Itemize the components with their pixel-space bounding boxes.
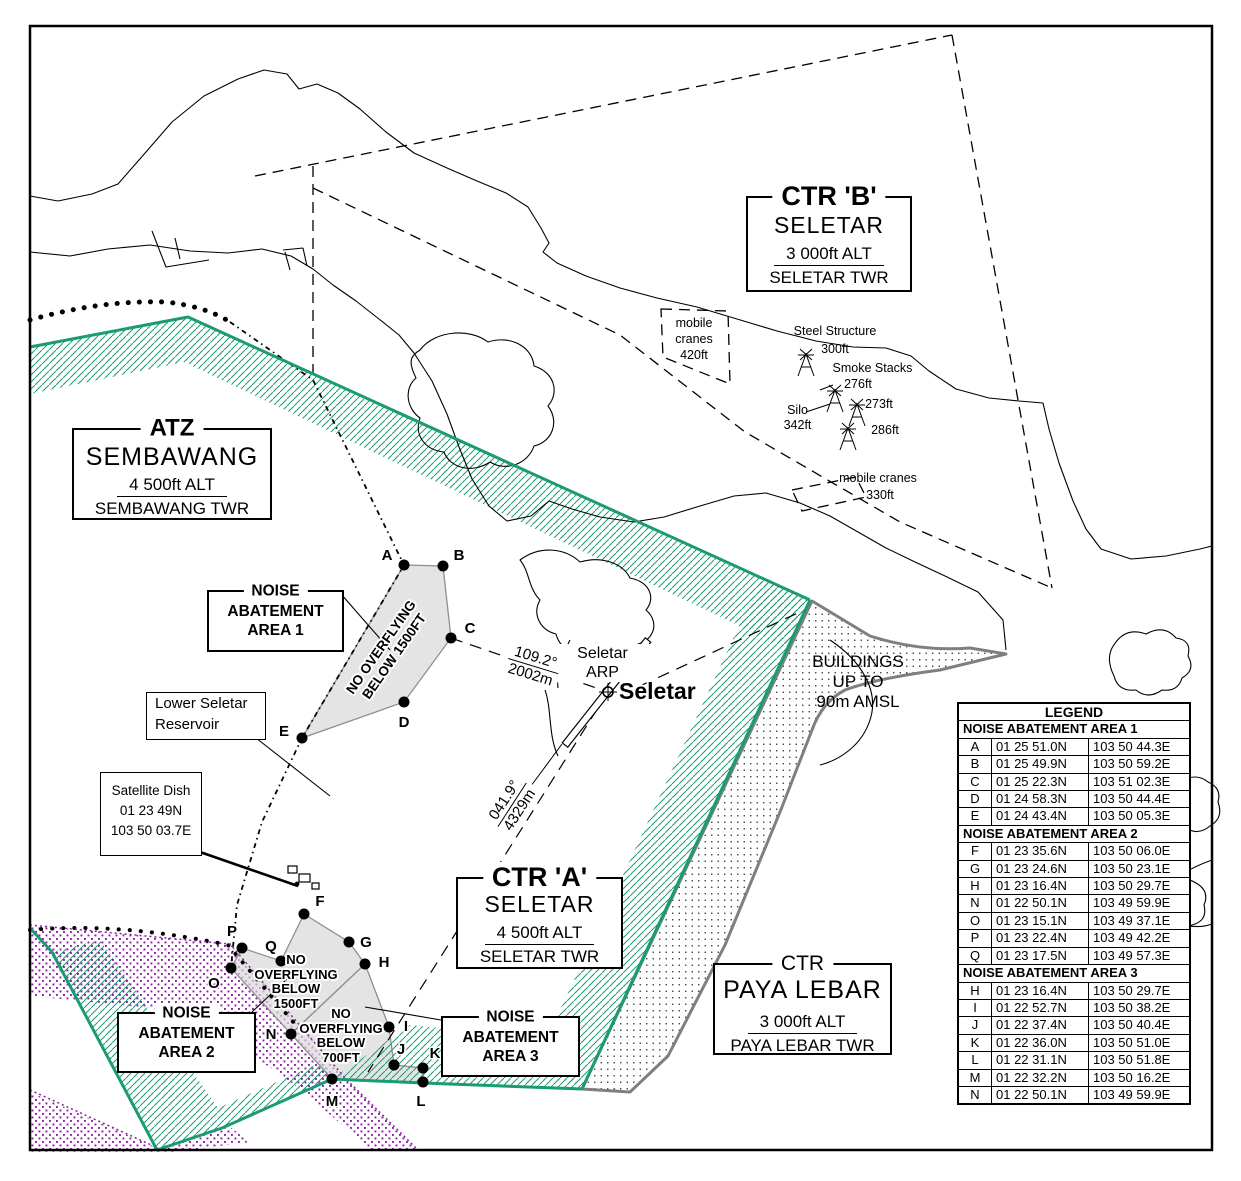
- ctr-a-name: SELETAR: [458, 891, 621, 918]
- legend-row: C01 25 22.3N103 51 02.3E: [958, 773, 1190, 790]
- satellite-dish-leader: [200, 852, 298, 886]
- legend-latitude: 01 22 37.4N: [992, 1017, 1089, 1034]
- overfly-area3-label: NO OVERFLYING BELOW 700FT: [299, 1007, 382, 1065]
- legend-point-id: K: [958, 1034, 992, 1051]
- legend-row: G01 23 24.6N103 50 23.1E: [958, 860, 1190, 877]
- point-marker-A: [399, 560, 410, 571]
- legend-latitude: 01 23 17.5N: [992, 947, 1089, 964]
- legend-latitude: 01 25 49.9N: [992, 756, 1089, 773]
- overfly-area3-line3: BELOW: [299, 1036, 382, 1051]
- legend-longitude: 103 50 38.2E: [1089, 999, 1191, 1016]
- point-label-J: J: [397, 1041, 405, 1058]
- point-marker-D: [399, 697, 410, 708]
- satellite-dish-line3: 103 50 03.7E: [101, 821, 201, 841]
- atz-name: SEMBAWANG: [74, 443, 270, 472]
- atz-sembawang-box: ATZ SEMBAWANG 4 500ft ALT SEMBAWANG TWR: [72, 428, 272, 520]
- noise-area1-box-line1: ABATEMENT: [209, 602, 342, 621]
- legend-row: I01 22 52.7N103 50 38.2E: [958, 999, 1190, 1016]
- legend-point-id: I: [958, 999, 992, 1016]
- legend-row: N01 22 50.1N103 49 59.9E: [958, 895, 1190, 912]
- legend-latitude: 01 23 16.4N: [992, 878, 1089, 895]
- legend-latitude: 01 22 50.1N: [992, 895, 1089, 912]
- reservoir-line2: Reservoir: [155, 714, 265, 735]
- legend-latitude: 01 23 16.4N: [992, 982, 1089, 999]
- mobile-cranes-se-height: 330ft: [855, 488, 905, 502]
- legend-longitude: 103 50 16.2E: [1089, 1069, 1191, 1086]
- seletar-city-label: Seletar: [619, 678, 696, 705]
- buildings-line2: UP TO: [788, 672, 928, 692]
- legend-row: P01 23 22.4N103 49 42.2E: [958, 930, 1190, 947]
- legend-row: F01 23 35.6N103 50 06.0E: [958, 843, 1190, 860]
- point-marker-G: [344, 937, 355, 948]
- point-label-O: O: [208, 975, 220, 992]
- smoke-stacks-h2: 273ft: [854, 397, 904, 411]
- noise-area3-box: NOISE ABATEMENT AREA 3: [441, 1016, 580, 1077]
- legend-latitude: 01 24 43.4N: [992, 808, 1089, 825]
- point-marker-O: [226, 963, 237, 974]
- mobile-cranes-nw-label: mobile cranes 420ft: [658, 315, 730, 363]
- legend-longitude: 103 51 02.3E: [1089, 773, 1191, 790]
- satellite-dish-callout: Satellite Dish 01 23 49N 103 50 03.7E: [100, 772, 202, 856]
- legend-latitude: 01 22 36.0N: [992, 1034, 1089, 1051]
- legend-point-id: A: [958, 738, 992, 755]
- legend-point-id: F: [958, 843, 992, 860]
- legend-section-header: NOISE ABATEMENT AREA 3: [958, 965, 1190, 982]
- mobile-cranes-se-label: mobile cranes: [828, 471, 928, 485]
- legend-table: LEGEND NOISE ABATEMENT AREA 1A01 25 51.0…: [957, 702, 1191, 1105]
- ctr-b-name: SELETAR: [748, 212, 910, 239]
- legend-longitude: 103 49 57.3E: [1089, 947, 1191, 964]
- ctr-b-boundary-nw: [255, 35, 952, 176]
- legend-longitude: 103 50 59.2E: [1089, 756, 1191, 773]
- legend-point-id: J: [958, 1017, 992, 1034]
- legend-row: L01 22 31.1N103 50 51.8E: [958, 1052, 1190, 1069]
- legend-longitude: 103 50 29.7E: [1089, 878, 1191, 895]
- legend-point-id: H: [958, 982, 992, 999]
- legend-row: B01 25 49.9N103 50 59.2E: [958, 756, 1190, 773]
- legend-latitude: 01 22 52.7N: [992, 999, 1089, 1016]
- point-marker-B: [438, 561, 449, 572]
- overfly-area3-line4: 700FT: [299, 1051, 382, 1066]
- point-label-P: P: [227, 923, 237, 940]
- aeronautical-chart: ABCDEFGHIJKLMNOPQ CTR 'B' SELETAR 3 000f…: [0, 0, 1241, 1181]
- point-marker-N: [286, 1029, 297, 1040]
- noise-area1-box: NOISE ABATEMENT AREA 1: [207, 590, 344, 652]
- legend-row: K01 22 36.0N103 50 51.0E: [958, 1034, 1190, 1051]
- noise-area3-box-title: NOISE: [478, 1008, 542, 1027]
- legend-longitude: 103 49 37.1E: [1089, 912, 1191, 929]
- smoke-stacks-h1: 276ft: [833, 377, 883, 391]
- satellite-dish-structures: [288, 866, 319, 889]
- legend-point-id: G: [958, 860, 992, 877]
- point-marker-L: [418, 1077, 429, 1088]
- legend-point-id: N: [958, 1086, 992, 1104]
- point-label-H: H: [379, 954, 390, 971]
- paya-lebar-name: PAYA LEBAR: [715, 976, 890, 1005]
- ctr-a-alt: 4 500ft ALT: [485, 923, 595, 945]
- legend-title: LEGEND: [958, 703, 1190, 721]
- legend-latitude: 01 23 35.6N: [992, 843, 1089, 860]
- overfly-area2-line3: BELOW: [254, 982, 337, 997]
- legend-point-id: E: [958, 808, 992, 825]
- legend-row: A01 25 51.0N103 50 44.3E: [958, 738, 1190, 755]
- atz-dotted-boundary: [30, 302, 230, 322]
- point-marker-I: [384, 1022, 395, 1033]
- mobile-cranes-nw-line3: 420ft: [658, 347, 730, 363]
- steel-structure-height: 300ft: [805, 342, 865, 356]
- buildings-line3: 90m AMSL: [788, 692, 928, 712]
- buildings-label: BUILDINGS UP TO 90m AMSL: [788, 652, 928, 712]
- legend-row: J01 22 37.4N103 50 40.4E: [958, 1017, 1190, 1034]
- legend-latitude: 01 24 58.3N: [992, 791, 1089, 808]
- legend-row: Q01 23 17.5N103 49 57.3E: [958, 947, 1190, 964]
- legend-point-id: B: [958, 756, 992, 773]
- reservoir-leader: [256, 738, 330, 796]
- point-marker-J: [389, 1060, 400, 1071]
- point-label-K: K: [430, 1045, 441, 1062]
- noise-area2-box-line1: ABATEMENT: [119, 1024, 254, 1043]
- point-label-I: I: [404, 1018, 408, 1035]
- legend-latitude: 01 23 15.1N: [992, 912, 1089, 929]
- point-label-N: N: [266, 1026, 277, 1043]
- ctr-b-alt: 3 000ft ALT: [774, 244, 884, 266]
- legend-longitude: 103 49 59.9E: [1089, 1086, 1191, 1104]
- legend-point-id: D: [958, 791, 992, 808]
- legend-longitude: 103 49 42.2E: [1089, 930, 1191, 947]
- point-label-D: D: [399, 714, 410, 731]
- ctr-paya-lebar-box: CTR PAYA LEBAR 3 000ft ALT PAYA LEBAR TW…: [713, 963, 892, 1055]
- overfly-area2-label: NO OVERFLYING BELOW 1500FT: [254, 953, 337, 1011]
- legend-row: O01 23 15.1N103 49 37.1E: [958, 912, 1190, 929]
- legend-longitude: 103 50 44.4E: [1089, 791, 1191, 808]
- point-label-L: L: [416, 1093, 425, 1110]
- point-marker-K: [418, 1063, 429, 1074]
- smoke-stacks-h3: 286ft: [860, 423, 910, 437]
- legend-point-id: L: [958, 1052, 992, 1069]
- ctr-b-title: CTR 'B': [772, 181, 885, 212]
- ctr-a-twr: SELETAR TWR: [458, 947, 621, 967]
- ctr-b-twr: SELETAR TWR: [748, 268, 910, 288]
- steel-structure-label: Steel Structure: [770, 324, 900, 338]
- point-label-G: G: [360, 934, 372, 951]
- legend-point-id: O: [958, 912, 992, 929]
- point-label-A: A: [382, 547, 393, 564]
- legend-row: H01 23 16.4N103 50 29.7E: [958, 878, 1190, 895]
- noise-area2-box-title: NOISE: [154, 1004, 218, 1023]
- legend-longitude: 103 50 06.0E: [1089, 843, 1191, 860]
- reservoir-callout: Lower Seletar Reservoir: [146, 692, 266, 740]
- legend-latitude: 01 23 24.6N: [992, 860, 1089, 877]
- legend-latitude: 01 25 22.3N: [992, 773, 1089, 790]
- legend-point-id: H: [958, 878, 992, 895]
- legend-longitude: 103 50 51.8E: [1089, 1052, 1191, 1069]
- ctr-b-boundary-south: [313, 188, 1052, 588]
- legend-row: D01 24 58.3N103 50 44.4E: [958, 791, 1190, 808]
- legend-point-id: N: [958, 895, 992, 912]
- satellite-dish-line2: 01 23 49N: [101, 801, 201, 821]
- point-marker-F: [299, 909, 310, 920]
- reservoir-line1: Lower Seletar: [155, 693, 265, 714]
- legend-longitude: 103 50 51.0E: [1089, 1034, 1191, 1051]
- legend-latitude: 01 22 32.2N: [992, 1069, 1089, 1086]
- legend-longitude: 103 50 44.3E: [1089, 738, 1191, 755]
- point-marker-M: [327, 1074, 338, 1085]
- legend-section-header: NOISE ABATEMENT AREA 1: [958, 721, 1190, 738]
- point-marker-C: [446, 633, 457, 644]
- runway-extension: [528, 744, 562, 790]
- paya-lebar-alt: 3 000ft ALT: [748, 1012, 858, 1034]
- pier-structures: [152, 231, 307, 270]
- noise-area3-box-line1: ABATEMENT: [443, 1028, 578, 1047]
- silo-height: 342ft: [770, 418, 825, 432]
- point-marker-H: [360, 959, 371, 970]
- point-marker-P: [237, 943, 248, 954]
- legend-longitude: 103 49 59.9E: [1089, 895, 1191, 912]
- legend-row: E01 24 43.4N103 50 05.3E: [958, 808, 1190, 825]
- seletar-arp-label: Seletar ARP: [550, 644, 655, 682]
- point-label-B: B: [454, 547, 465, 564]
- legend-longitude: 103 50 23.1E: [1089, 860, 1191, 877]
- ctr-b-box: CTR 'B' SELETAR 3 000ft ALT SELETAR TWR: [746, 196, 912, 292]
- legend-latitude: 01 25 51.0N: [992, 738, 1089, 755]
- legend-longitude: 103 50 29.7E: [1089, 982, 1191, 999]
- buildings-line1: BUILDINGS: [788, 652, 928, 672]
- mobile-cranes-nw-line2: cranes: [658, 331, 730, 347]
- legend-longitude: 103 50 40.4E: [1089, 1017, 1191, 1034]
- point-label-C: C: [465, 620, 476, 637]
- legend-point-id: P: [958, 930, 992, 947]
- legend-point-id: M: [958, 1069, 992, 1086]
- atz-twr: SEMBAWANG TWR: [74, 499, 270, 519]
- legend-row: N01 22 50.1N103 49 59.9E: [958, 1086, 1190, 1104]
- overfly-area3-line1: NO: [299, 1007, 382, 1022]
- paya-lebar-title: CTR: [772, 952, 833, 976]
- legend-longitude: 103 50 05.3E: [1089, 808, 1191, 825]
- paya-lebar-twr: PAYA LEBAR TWR: [715, 1036, 890, 1056]
- seletar-arp-line1: Seletar: [550, 644, 655, 663]
- atz-title: ATZ: [141, 415, 204, 443]
- noise-area2-box: NOISE ABATEMENT AREA 2: [117, 1012, 256, 1073]
- point-label-E: E: [279, 723, 289, 740]
- ctr-a-title: CTR 'A': [483, 862, 596, 893]
- legend-point-id: Q: [958, 947, 992, 964]
- legend-row: H01 23 16.4N103 50 29.7E: [958, 982, 1190, 999]
- legend-latitude: 01 23 22.4N: [992, 930, 1089, 947]
- island-east-1: [1109, 630, 1190, 695]
- satellite-dish-line1: Satellite Dish: [101, 781, 201, 801]
- legend-point-id: C: [958, 773, 992, 790]
- island-seletar-west: [408, 333, 554, 468]
- point-label-M: M: [326, 1093, 339, 1110]
- silo-label: Silo: [775, 403, 820, 417]
- noise-area3-box-line2: AREA 3: [443, 1047, 578, 1066]
- noise-area1-box-title: NOISE: [243, 582, 307, 601]
- atz-alt: 4 500ft ALT: [117, 475, 227, 497]
- noise-area1-box-line2: AREA 1: [209, 621, 342, 640]
- noise-area2-box-line2: AREA 2: [119, 1043, 254, 1062]
- ctr-b-boundary-east: [952, 35, 1052, 588]
- legend-section-header: NOISE ABATEMENT AREA 2: [958, 825, 1190, 842]
- legend-latitude: 01 22 31.1N: [992, 1052, 1089, 1069]
- point-marker-E: [297, 733, 308, 744]
- overfly-area3-line2: OVERFLYING: [299, 1022, 382, 1037]
- overfly-area2-line1: NO: [254, 953, 337, 968]
- legend-latitude: 01 22 50.1N: [992, 1086, 1089, 1104]
- ctr-a-box: CTR 'A' SELETAR 4 500ft ALT SELETAR TWR: [456, 877, 623, 969]
- overfly-area2-line2: OVERFLYING: [254, 968, 337, 983]
- point-label-F: F: [315, 893, 324, 910]
- legend-row: M01 22 32.2N103 50 16.2E: [958, 1069, 1190, 1086]
- mobile-cranes-nw-line1: mobile: [658, 315, 730, 331]
- smoke-stacks-label: Smoke Stacks: [815, 361, 930, 375]
